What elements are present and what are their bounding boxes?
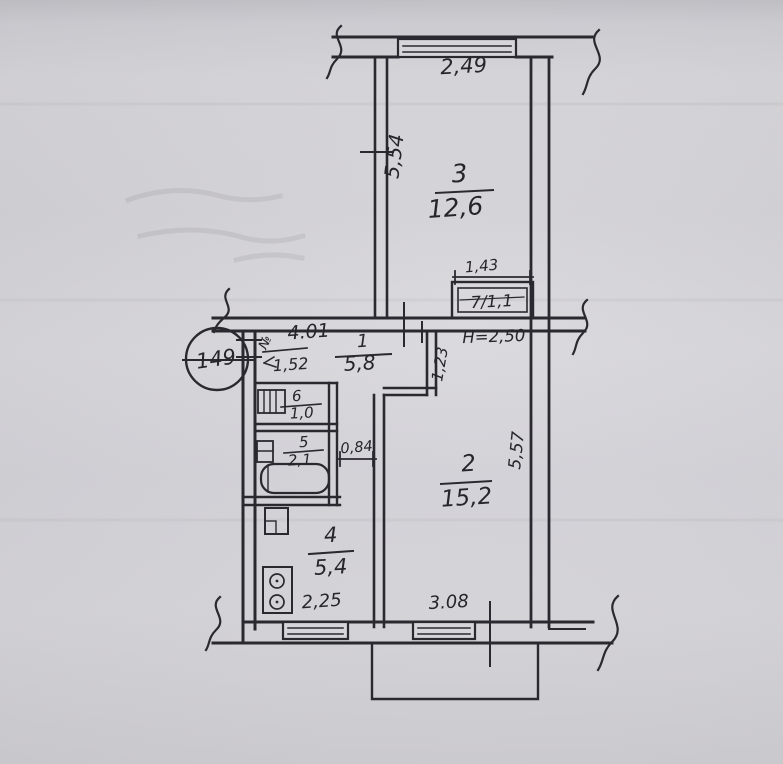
window-kitchen xyxy=(283,622,348,639)
floor-plan-photo: 2,49 5,54 3 12,6 1,43 7/1,1 4.01 № 1,52 … xyxy=(0,0,783,764)
ceiling-height-note: H=2,50 xyxy=(462,326,526,347)
dim-closet: 1,43 xyxy=(464,256,499,277)
break-mark-bottom-right xyxy=(598,596,618,670)
apartment-number: 149 xyxy=(195,344,238,373)
kitchen-number: 4 xyxy=(323,523,338,548)
wall-room2-step xyxy=(374,331,436,627)
wc-number: 6 xyxy=(292,387,302,405)
bath-area: 2,1 xyxy=(287,450,312,469)
dim-wall-left-room3: 5,54 xyxy=(379,133,408,180)
burner-dot xyxy=(276,601,279,604)
room1-area: 5,8 xyxy=(343,350,376,376)
dim-passage: 0,84 xyxy=(340,439,374,458)
window-frame xyxy=(413,622,475,639)
dim-window-room2: 3.08 xyxy=(428,591,469,614)
kitchen-stove xyxy=(263,567,292,613)
burner-dot xyxy=(276,580,279,583)
ghost-stroke xyxy=(140,230,303,241)
kitchen-area: 5,4 xyxy=(313,554,348,580)
paper-ghost-marks xyxy=(128,191,303,260)
dim-niche: 1,52 xyxy=(272,354,309,375)
closet-label: 7/1,1 xyxy=(470,291,513,312)
bathroom-sink xyxy=(257,441,273,462)
dim-hallway: 4.01 xyxy=(287,320,331,345)
break-mark-mid-left xyxy=(214,289,229,332)
dim-wall-step: 1,23 xyxy=(428,346,452,383)
corridor-mark: № xyxy=(256,333,276,353)
room2-number: 2 xyxy=(460,451,476,478)
bath-number: 5 xyxy=(299,433,309,451)
wall-room3-right xyxy=(531,57,549,627)
hatch-lines xyxy=(264,390,276,413)
balcony-outline xyxy=(372,643,538,699)
break-mark-top-right xyxy=(583,30,600,94)
wc-door-hatch xyxy=(258,390,285,413)
dim-window-kitchen: 2,25 xyxy=(301,590,342,614)
window-room2 xyxy=(413,622,475,639)
labels: 2,49 5,54 3 12,6 1,43 7/1,1 4.01 № 1,52 … xyxy=(195,53,529,614)
room3-number: 3 xyxy=(450,159,468,189)
ghost-stroke xyxy=(128,191,280,200)
room3-area: 12,6 xyxy=(427,191,485,224)
cabinet-inner xyxy=(265,521,276,534)
floor-plan-drawing: 2,49 5,54 3 12,6 1,43 7/1,1 4.01 № 1,52 … xyxy=(0,0,783,764)
door-leaf xyxy=(258,390,285,413)
break-mark-mid-right xyxy=(573,300,587,354)
dim-wall-right-room2: 5,57 xyxy=(505,430,529,470)
room1-number: 1 xyxy=(356,331,369,353)
break-mark-top-left xyxy=(327,26,341,78)
dim-window-top: 2,49 xyxy=(440,53,488,79)
window-frame xyxy=(283,622,348,639)
ghost-stroke xyxy=(236,255,302,260)
wc-area: 1,0 xyxy=(289,403,314,422)
room2-area: 15,2 xyxy=(440,483,493,513)
wall-room3-left xyxy=(361,57,393,318)
